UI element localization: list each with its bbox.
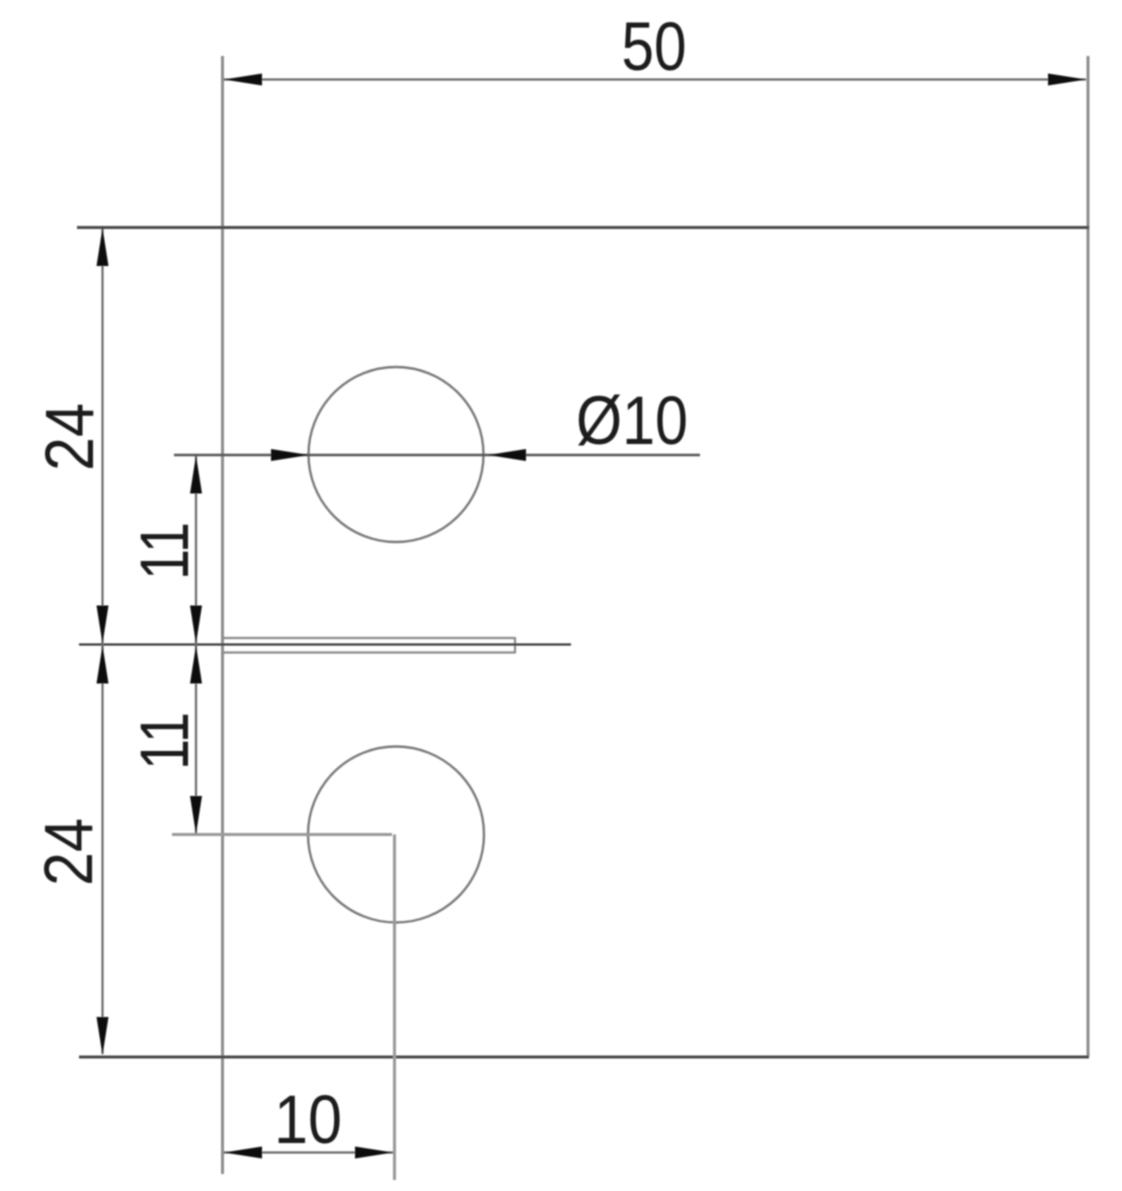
svg-text:Ø10: Ø10: [576, 382, 688, 459]
svg-text:10: 10: [274, 1081, 342, 1158]
svg-text:11: 11: [126, 712, 203, 770]
svg-text:11: 11: [126, 522, 203, 580]
svg-text:24: 24: [30, 818, 107, 886]
svg-text:50: 50: [622, 8, 687, 85]
svg-text:24: 24: [31, 403, 108, 471]
